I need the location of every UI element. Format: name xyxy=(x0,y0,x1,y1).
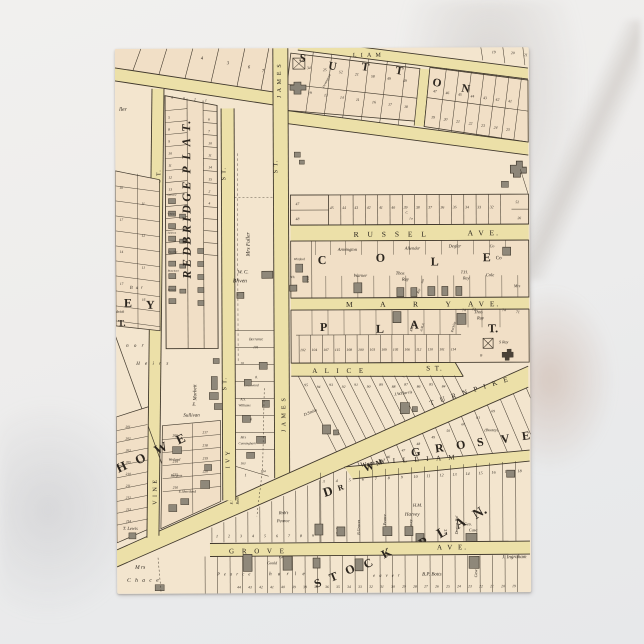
svg-text:43: 43 xyxy=(354,206,358,210)
svg-text:Berrance: Berrance xyxy=(249,337,263,341)
svg-text:87: 87 xyxy=(404,383,408,387)
svg-text:42: 42 xyxy=(259,585,263,589)
svg-text:(Bootey): (Bootey) xyxy=(484,427,498,432)
svg-text:86: 86 xyxy=(417,385,421,389)
svg-text:J. Ingraham: J. Ingraham xyxy=(502,555,527,560)
svg-text:A.S.: A.S. xyxy=(239,397,246,401)
svg-text:43: 43 xyxy=(248,585,252,589)
svg-text:Case: Case xyxy=(469,527,478,532)
svg-text:T.: T. xyxy=(488,321,498,335)
svg-text:H.M.: H.M. xyxy=(412,503,422,508)
svg-text:drick: drick xyxy=(116,309,124,314)
svg-text:210: 210 xyxy=(126,472,131,476)
svg-text:15: 15 xyxy=(208,177,212,181)
svg-text:14: 14 xyxy=(208,165,212,169)
svg-text:6: 6 xyxy=(276,533,278,538)
svg-text:20: 20 xyxy=(511,51,515,55)
svg-text:15: 15 xyxy=(479,470,483,475)
svg-text:26: 26 xyxy=(435,584,439,588)
svg-text:212: 212 xyxy=(126,496,131,500)
svg-text:52: 52 xyxy=(339,70,343,74)
svg-text:60: 60 xyxy=(461,422,465,426)
svg-text:12: 12 xyxy=(168,176,172,180)
svg-text:23: 23 xyxy=(468,584,472,588)
svg-text:B a r: B a r xyxy=(130,285,144,290)
svg-text:40: 40 xyxy=(281,585,285,589)
svg-text:11: 11 xyxy=(427,473,431,478)
svg-text:Beck: Beck xyxy=(236,497,240,505)
svg-text:34: 34 xyxy=(465,205,469,209)
svg-text:1: 1 xyxy=(205,99,207,103)
svg-text:8: 8 xyxy=(183,97,185,101)
svg-text:SHOP: SHOP xyxy=(306,275,310,283)
svg-text:V I N E: V I N E xyxy=(153,479,159,505)
svg-text:5: 5 xyxy=(349,477,351,482)
svg-text:16: 16 xyxy=(372,100,376,104)
svg-text:209: 209 xyxy=(126,460,131,464)
svg-text:25: 25 xyxy=(506,128,510,132)
svg-text:213: 213 xyxy=(126,507,131,511)
svg-text:Bergens: Bergens xyxy=(171,474,183,478)
svg-text:42: 42 xyxy=(496,98,500,102)
svg-text:91: 91 xyxy=(354,383,358,387)
svg-text:5: 5 xyxy=(264,533,266,538)
svg-text:I V Y: I V Y xyxy=(226,450,232,468)
svg-text:T.H.: T.H. xyxy=(461,269,468,274)
svg-text:110: 110 xyxy=(428,348,433,352)
svg-text:A L I C E: A L I C E xyxy=(312,367,366,375)
svg-text:101: 101 xyxy=(439,347,445,351)
svg-text:105: 105 xyxy=(393,348,399,352)
svg-text:A: A xyxy=(410,318,419,332)
svg-text:94: 94 xyxy=(317,385,321,389)
svg-text:23: 23 xyxy=(481,124,485,128)
svg-text:100: 100 xyxy=(358,348,364,352)
svg-text:Harvey: Harvey xyxy=(404,513,421,518)
svg-text:13: 13 xyxy=(453,472,457,477)
svg-text:19: 19 xyxy=(492,50,496,54)
svg-text:14: 14 xyxy=(120,250,124,254)
svg-text:Morbett: Morbett xyxy=(193,384,198,402)
svg-text:L: L xyxy=(431,254,439,268)
svg-text:Williams: Williams xyxy=(238,403,251,407)
svg-text:14: 14 xyxy=(340,96,344,100)
svg-text:10: 10 xyxy=(240,361,244,365)
svg-text:Cole: Cole xyxy=(486,272,495,277)
svg-text:6: 6 xyxy=(362,477,364,482)
svg-text:13: 13 xyxy=(324,93,328,97)
svg-text:Mrs: Mrs xyxy=(240,435,247,439)
svg-text:211: 211 xyxy=(126,484,131,488)
svg-text:102: 102 xyxy=(300,348,306,352)
svg-text:10: 10 xyxy=(414,474,418,479)
svg-text:36: 36 xyxy=(440,205,444,209)
svg-text:92: 92 xyxy=(342,385,346,389)
svg-text:7: 7 xyxy=(208,129,210,133)
svg-text:W. C.: W. C. xyxy=(238,270,249,275)
svg-text:11: 11 xyxy=(142,266,146,270)
svg-text:61: 61 xyxy=(476,416,480,420)
svg-text:49: 49 xyxy=(387,77,391,81)
svg-text:17: 17 xyxy=(120,282,124,286)
svg-text:Rooney: Rooney xyxy=(167,289,177,292)
svg-text:12: 12 xyxy=(440,472,444,477)
svg-text:ller: ller xyxy=(119,107,128,113)
svg-text:45: 45 xyxy=(330,206,334,210)
svg-text:13: 13 xyxy=(168,188,172,192)
svg-text:114: 114 xyxy=(451,347,456,351)
svg-text:32: 32 xyxy=(490,205,494,209)
svg-text:21: 21 xyxy=(490,584,494,588)
svg-text:J A M E S: J A M E S xyxy=(277,63,283,98)
svg-text:Co: Co xyxy=(490,243,495,248)
svg-text:Co: Co xyxy=(496,256,502,261)
svg-text:10: 10 xyxy=(168,152,172,156)
svg-text:9: 9 xyxy=(401,475,403,480)
svg-text:219: 219 xyxy=(203,457,209,461)
svg-text:93: 93 xyxy=(329,383,333,387)
svg-text:1: 1 xyxy=(216,533,218,538)
svg-text:2: 2 xyxy=(208,189,210,193)
svg-text:2: 2 xyxy=(194,98,196,102)
svg-text:21: 21 xyxy=(355,72,359,76)
svg-text:44: 44 xyxy=(237,585,241,589)
svg-text:109: 109 xyxy=(381,348,387,352)
svg-text:218: 218 xyxy=(203,444,209,448)
svg-text:32: 32 xyxy=(369,585,373,589)
svg-text:214: 214 xyxy=(126,519,131,523)
svg-text:203: 203 xyxy=(126,448,131,452)
svg-text:107: 107 xyxy=(323,348,329,352)
svg-text:C h a c e: C h a c e xyxy=(127,578,160,584)
svg-text:R E D: R E D xyxy=(180,247,194,280)
svg-text:6: 6 xyxy=(208,117,210,121)
svg-text:E: E xyxy=(124,296,132,310)
svg-text:19: 19 xyxy=(431,116,435,120)
svg-text:9: 9 xyxy=(168,140,170,144)
svg-text:J A M E S: J A M E S xyxy=(281,397,287,432)
svg-text:217: 217 xyxy=(202,431,208,435)
svg-text:l e: l e xyxy=(410,217,414,221)
svg-text:69: 69 xyxy=(491,409,495,413)
svg-text:43: 43 xyxy=(483,96,487,100)
svg-text:20: 20 xyxy=(444,118,448,122)
svg-text:S Ray: S Ray xyxy=(499,339,508,344)
svg-text:8: 8 xyxy=(388,475,390,480)
svg-text:48: 48 xyxy=(296,217,300,221)
svg-text:8.: 8. xyxy=(255,375,258,379)
svg-text:Thos: Thos xyxy=(396,271,405,276)
svg-text:21: 21 xyxy=(524,53,528,57)
svg-text:101: 101 xyxy=(253,345,259,349)
svg-text:Gerhard: Gerhard xyxy=(167,194,177,197)
svg-text:73: 73 xyxy=(472,307,476,311)
svg-text:42: 42 xyxy=(367,206,371,210)
svg-text:1: 1 xyxy=(245,472,247,477)
svg-text:10: 10 xyxy=(208,141,212,145)
svg-text:22: 22 xyxy=(469,122,473,126)
svg-text:H e i r s: H e i r s xyxy=(135,362,170,367)
svg-text:95: 95 xyxy=(304,383,308,387)
svg-text:Thos Ray: Thos Ray xyxy=(168,251,179,254)
svg-text:e a v e r: e a v e r xyxy=(373,573,401,578)
svg-text:Case: Case xyxy=(473,569,478,577)
svg-text:216: 216 xyxy=(173,486,179,490)
svg-text:16: 16 xyxy=(492,470,496,475)
svg-text:104: 104 xyxy=(312,348,318,352)
svg-text:202: 202 xyxy=(126,437,131,441)
svg-text:14: 14 xyxy=(466,471,470,476)
svg-text:46: 46 xyxy=(446,91,450,95)
svg-text:112: 112 xyxy=(416,348,421,352)
svg-text:Wh: Wh xyxy=(290,275,295,279)
svg-text:Ray: Ray xyxy=(462,275,470,280)
svg-text:74: 74 xyxy=(462,308,466,312)
svg-text:36: 36 xyxy=(325,585,329,589)
svg-text:18: 18 xyxy=(404,105,408,109)
svg-text:163: 163 xyxy=(241,461,246,465)
svg-text:17: 17 xyxy=(120,218,124,222)
svg-text:35: 35 xyxy=(453,205,457,209)
svg-text:L I A M: L I A M xyxy=(353,53,382,59)
svg-text:24: 24 xyxy=(457,584,461,588)
svg-text:28: 28 xyxy=(413,585,417,589)
svg-text:S T.: S T. xyxy=(273,160,279,173)
svg-text:Armington: Armington xyxy=(337,247,358,252)
svg-text:h a r l e: h a r l e xyxy=(269,572,307,577)
svg-text:33: 33 xyxy=(477,205,481,209)
svg-text:A V E.: A V E. xyxy=(468,228,500,237)
svg-text:Ray: Ray xyxy=(476,315,484,320)
svg-text:38: 38 xyxy=(416,206,420,210)
svg-text:84: 84 xyxy=(442,384,446,388)
svg-text:E.Shortland: E.Shortland xyxy=(178,490,196,494)
svg-text:R U S S E L: R U S S E L xyxy=(354,230,430,239)
svg-text:B R I D G E: B R I D G E xyxy=(179,181,193,245)
svg-text:4: 4 xyxy=(252,533,254,538)
svg-text:115: 115 xyxy=(335,348,340,352)
svg-text:44: 44 xyxy=(471,94,475,98)
svg-text:8: 8 xyxy=(300,533,302,538)
svg-text:C: C xyxy=(318,253,327,267)
svg-text:11: 11 xyxy=(356,98,360,102)
svg-text:Rob't: Rob't xyxy=(278,510,289,515)
svg-text:Degler: Degler xyxy=(448,243,462,248)
svg-text:O: O xyxy=(376,251,385,265)
svg-text:P: P xyxy=(320,320,327,334)
svg-text:88: 88 xyxy=(392,385,396,389)
svg-text:44: 44 xyxy=(342,206,346,210)
svg-text:52: 52 xyxy=(515,200,519,204)
svg-text:31: 31 xyxy=(380,585,384,589)
svg-text:74: 74 xyxy=(502,308,506,312)
svg-text:Mrs Fuller: Mrs Fuller xyxy=(246,231,252,257)
svg-text:Warner: Warner xyxy=(354,273,368,278)
svg-text:34: 34 xyxy=(307,66,311,70)
svg-text:E: E xyxy=(483,250,491,264)
svg-text:Mrs: Mrs xyxy=(513,283,521,288)
svg-text:4: 4 xyxy=(208,201,210,205)
svg-text:10: 10 xyxy=(119,186,123,190)
svg-text:41: 41 xyxy=(270,585,274,589)
svg-text:40: 40 xyxy=(391,206,395,210)
svg-text:29: 29 xyxy=(402,585,406,589)
svg-text:20: 20 xyxy=(501,584,505,588)
svg-text:S T.: S T. xyxy=(221,167,227,180)
svg-text:41: 41 xyxy=(508,99,512,103)
svg-text:47: 47 xyxy=(402,449,406,453)
svg-text:Bliven: Bliven xyxy=(233,278,247,284)
svg-text:E.: E. xyxy=(191,402,196,407)
svg-text:M rs: M rs xyxy=(134,565,145,571)
svg-text:30: 30 xyxy=(391,585,395,589)
svg-text:11: 11 xyxy=(141,202,145,206)
svg-text:Allender: Allender xyxy=(404,246,421,251)
svg-text:8: 8 xyxy=(168,128,170,132)
svg-text:Gould: Gould xyxy=(267,560,278,565)
svg-text:S T.: S T. xyxy=(222,377,228,390)
svg-text:71: 71 xyxy=(516,310,520,314)
svg-text:89: 89 xyxy=(379,383,383,387)
svg-text:L: L xyxy=(376,322,384,336)
svg-text:11: 11 xyxy=(208,153,212,157)
svg-text:Ray: Ray xyxy=(401,277,409,282)
svg-text:38: 38 xyxy=(303,585,307,589)
svg-text:11: 11 xyxy=(168,164,172,168)
svg-text:Cunningham: Cunningham xyxy=(239,441,257,445)
svg-text:33: 33 xyxy=(358,585,362,589)
svg-text:Blanchard: Blanchard xyxy=(168,270,180,273)
svg-text:12: 12 xyxy=(142,234,146,238)
svg-text:90: 90 xyxy=(367,385,371,389)
svg-text:B.Graves: B.Graves xyxy=(356,519,361,534)
svg-text:n o r: n o r xyxy=(126,344,145,349)
svg-text:S T.: S T. xyxy=(426,364,443,372)
svg-text:T.: T. xyxy=(118,318,126,328)
svg-text:3: 3 xyxy=(240,533,242,538)
svg-text:A V E.: A V E. xyxy=(437,543,468,551)
svg-text:108: 108 xyxy=(347,348,353,352)
svg-text:P e a r c e: P e a r c e xyxy=(216,571,252,576)
svg-text:27: 27 xyxy=(424,585,428,589)
svg-text:5: 5 xyxy=(168,116,170,120)
svg-text:49: 49 xyxy=(432,435,436,439)
svg-text:Pearce: Pearce xyxy=(276,518,290,523)
svg-text:Sullivan: Sullivan xyxy=(168,232,177,235)
svg-text:39: 39 xyxy=(404,206,408,210)
svg-text:9: 9 xyxy=(312,533,314,538)
svg-text:50: 50 xyxy=(446,429,450,433)
svg-text:58: 58 xyxy=(371,75,375,79)
svg-text:25: 25 xyxy=(446,584,450,588)
svg-text:104: 104 xyxy=(261,469,266,473)
svg-text:21: 21 xyxy=(456,120,460,124)
svg-text:106: 106 xyxy=(405,348,411,352)
svg-text:103: 103 xyxy=(370,348,376,352)
svg-text:4: 4 xyxy=(171,96,173,100)
svg-text:T. Lewis: T. Lewis xyxy=(123,526,138,531)
svg-text:26: 26 xyxy=(518,216,522,220)
svg-text:34: 34 xyxy=(347,585,351,589)
svg-text:49: 49 xyxy=(403,79,407,83)
svg-text:35: 35 xyxy=(336,585,340,589)
svg-text:Y: Y xyxy=(146,298,155,312)
svg-text:Sullivan: Sullivan xyxy=(183,414,200,419)
svg-text:3: 3 xyxy=(323,479,325,484)
svg-text:41: 41 xyxy=(379,206,383,210)
svg-text:P L A T.: P L A T. xyxy=(179,119,193,174)
svg-text:O: O xyxy=(455,437,466,452)
svg-text:B.P. Botts: B.P. Botts xyxy=(422,572,442,577)
svg-text:25: 25 xyxy=(323,68,327,72)
svg-text:22: 22 xyxy=(479,584,483,588)
svg-text:18: 18 xyxy=(518,468,522,473)
svg-text:24: 24 xyxy=(494,126,498,130)
svg-text:39: 39 xyxy=(292,585,296,589)
svg-text:Whitford: Whitford xyxy=(294,257,306,261)
svg-text:2: 2 xyxy=(228,533,230,538)
svg-text:85: 85 xyxy=(429,383,433,387)
svg-text:Wetland: Wetland xyxy=(169,458,181,462)
svg-text:4: 4 xyxy=(336,478,338,483)
svg-text:19: 19 xyxy=(308,91,312,95)
svg-text:Whelan: Whelan xyxy=(168,213,177,216)
svg-text:19: 19 xyxy=(512,584,516,588)
svg-text:201: 201 xyxy=(125,425,130,429)
svg-text:M A R Y: M A R Y xyxy=(346,299,464,309)
